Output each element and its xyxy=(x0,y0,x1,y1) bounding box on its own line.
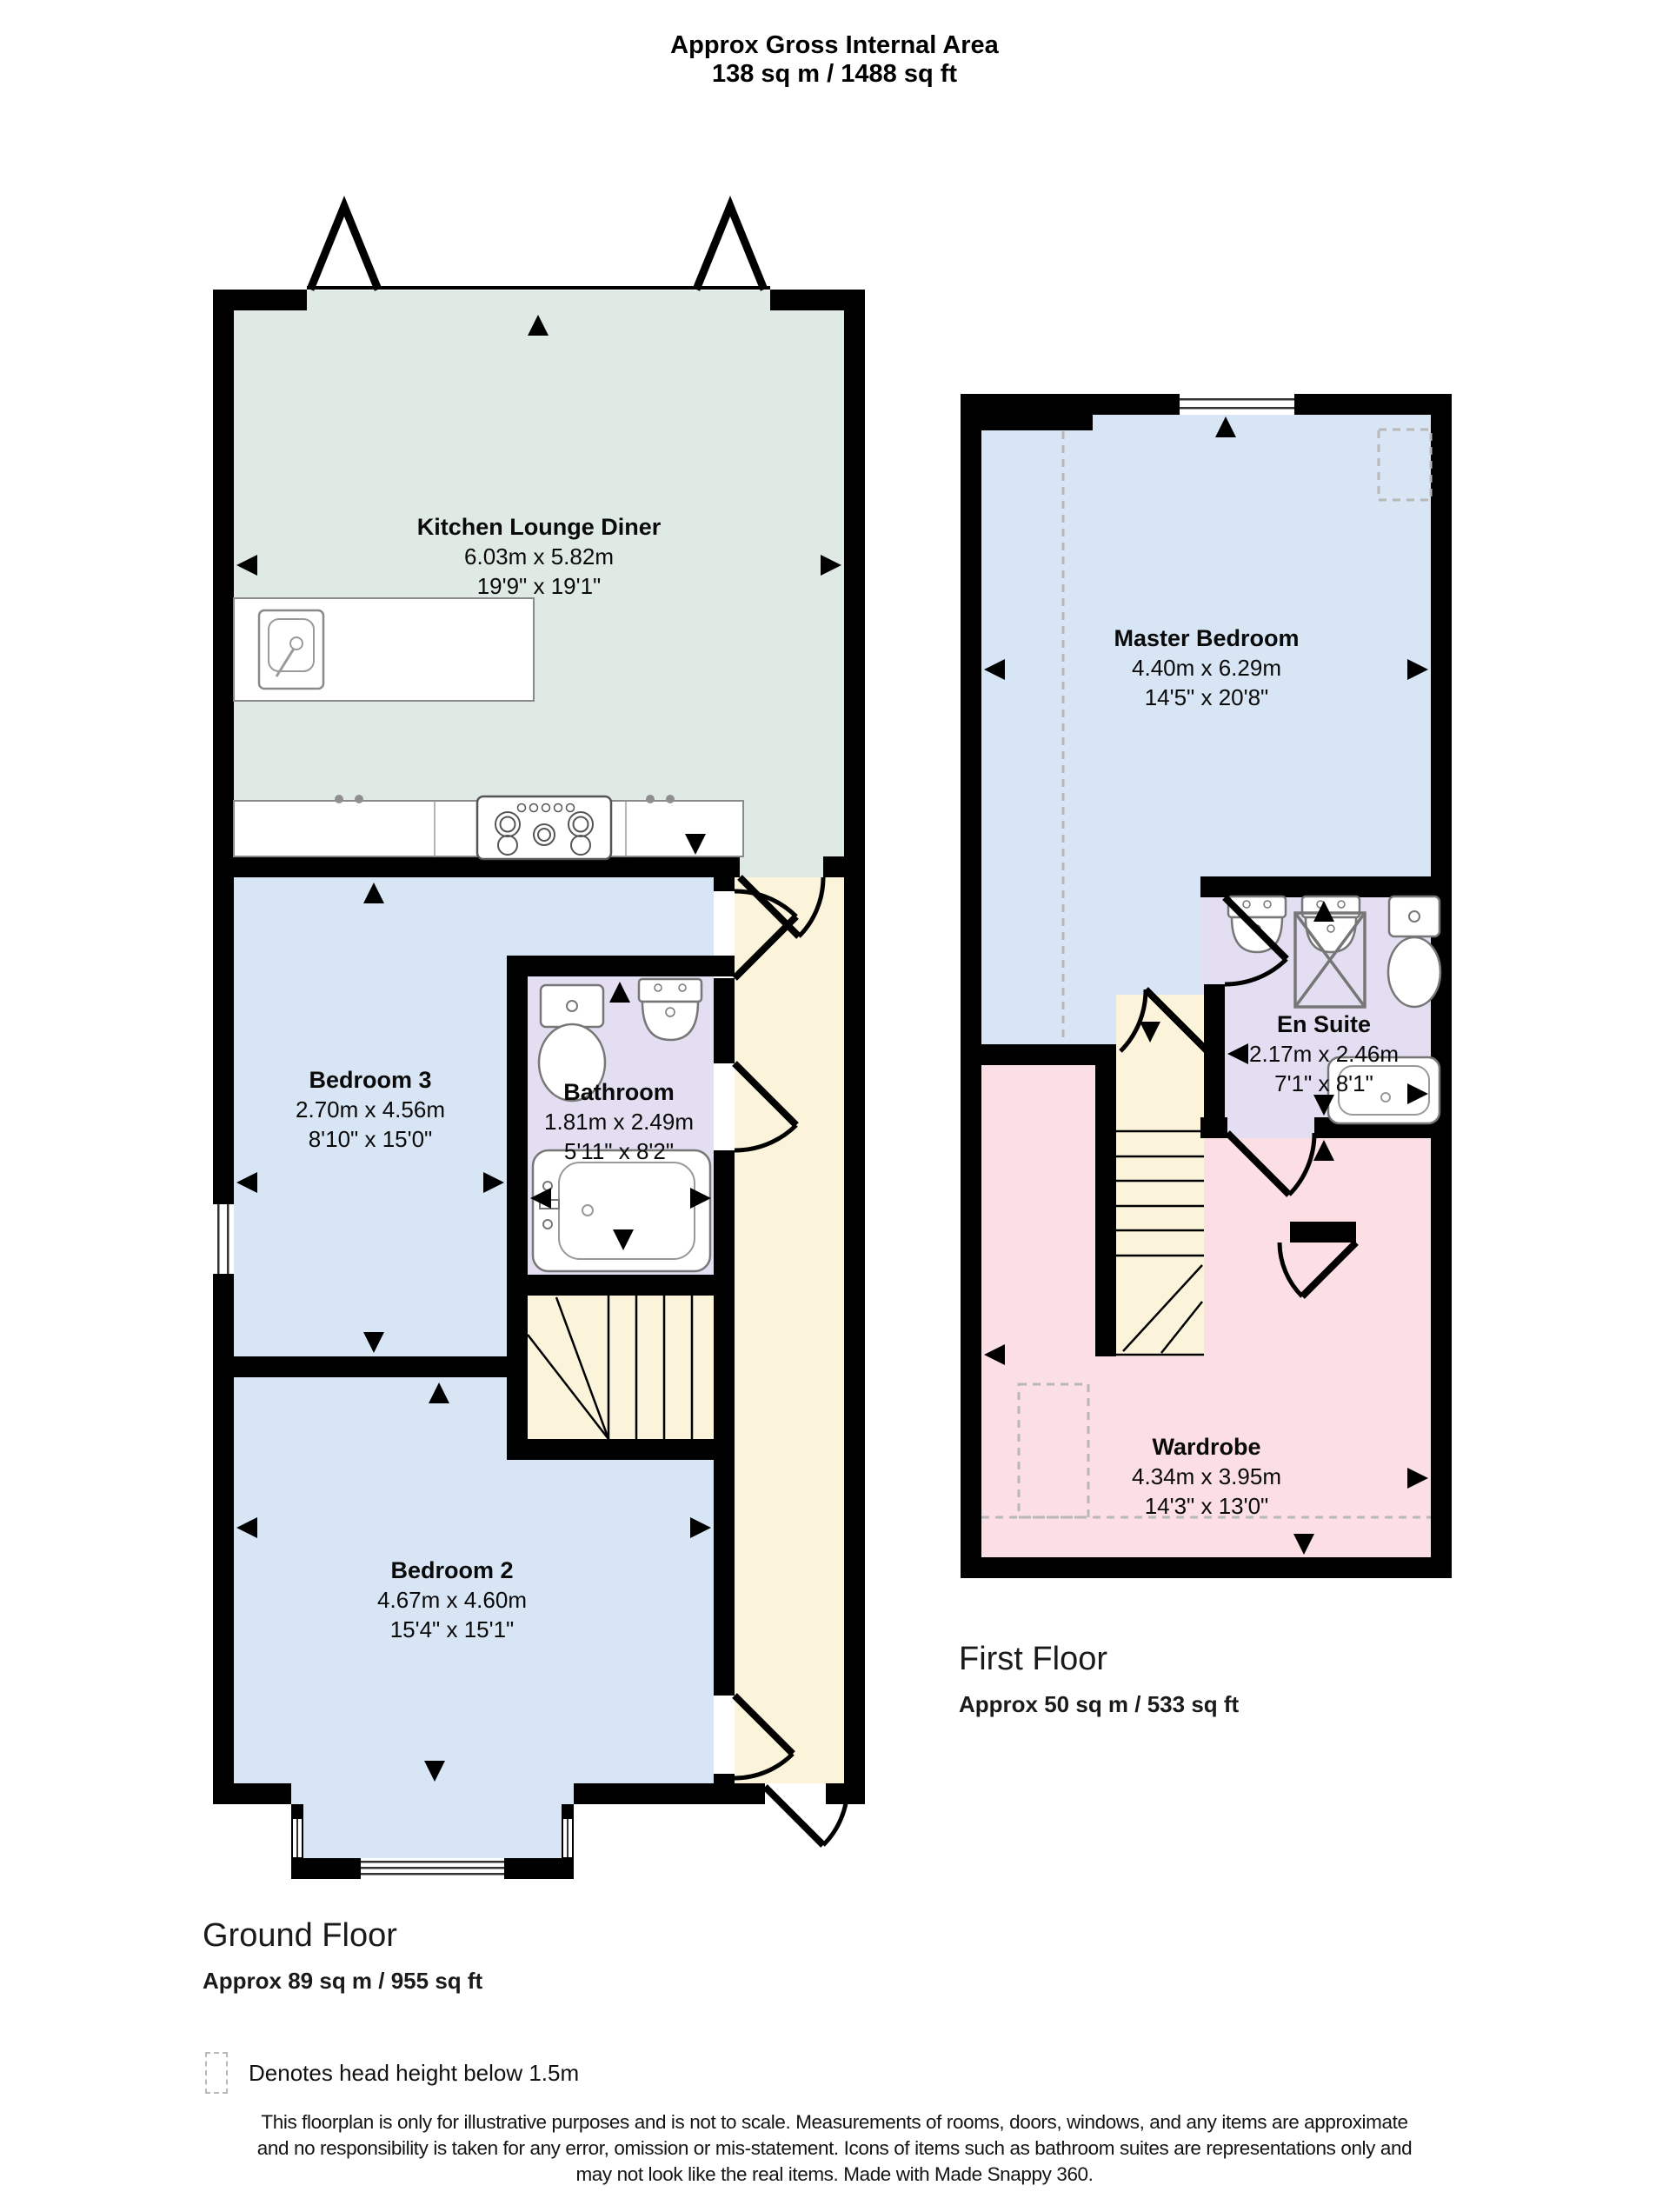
room-size-metric: 2.17m x 2.46m xyxy=(1249,1039,1399,1069)
floor-area: Approx 89 sq m / 955 sq ft xyxy=(203,1965,482,1996)
room-size-metric: 4.34m x 3.95m xyxy=(1132,1462,1281,1491)
window-line xyxy=(217,1204,220,1274)
wall-segment xyxy=(961,1557,1452,1578)
handle-dot xyxy=(335,795,343,803)
hallway-floor xyxy=(735,877,844,1783)
bathtub-icon xyxy=(533,1150,710,1271)
disclaimer-line: This floorplan is only for illustrative … xyxy=(0,2109,1669,2135)
first-floor-label: First Floor Approx 50 sq m / 533 sq ft xyxy=(959,1640,1239,1720)
first-floor-window xyxy=(1180,394,1294,415)
room-name: Bathroom xyxy=(544,1078,694,1107)
bifold-door-icon xyxy=(696,206,764,290)
room-name: Bedroom 2 xyxy=(377,1556,527,1585)
room-name: Master Bedroom xyxy=(1114,624,1299,653)
gross-area-value: 138 sq m / 1488 sq ft xyxy=(0,60,1669,89)
window xyxy=(1180,394,1294,415)
gross-area-title: Approx Gross Internal Area xyxy=(0,31,1669,60)
room-size-metric: 4.40m x 6.29m xyxy=(1114,653,1299,683)
room-label-bedroom2: Bedroom 2 4.67m x 4.60m 15'4" x 15'1" xyxy=(377,1556,527,1644)
wall-segment xyxy=(213,1356,528,1377)
room-size-metric: 4.67m x 4.60m xyxy=(377,1585,527,1615)
wall-segment xyxy=(714,1150,735,1696)
wall-segment xyxy=(1294,394,1452,415)
floor-name: Ground Floor xyxy=(203,1916,482,1955)
bifold-door-icons xyxy=(310,206,764,290)
basin-icon xyxy=(639,979,702,1040)
room-name: En Suite xyxy=(1249,1010,1399,1039)
room-label-ensuite: En Suite 2.17m x 2.46m 7'1" x 8'1" xyxy=(1249,1010,1399,1098)
room-name: Wardrobe xyxy=(1132,1433,1281,1462)
stairs-floor xyxy=(528,1296,714,1439)
wall-segment xyxy=(1204,984,1225,1131)
bathtub-inner xyxy=(559,1163,695,1259)
toilet-cistern xyxy=(541,985,603,1027)
wall-segment xyxy=(1095,1044,1116,1356)
room-size-imperial: 15'4" x 15'1" xyxy=(377,1615,527,1644)
bay-wall xyxy=(504,1858,574,1879)
window-line xyxy=(361,1867,504,1869)
disclaimer: This floorplan is only for illustrative … xyxy=(0,2109,1669,2188)
room-name: Bedroom 3 xyxy=(296,1066,445,1095)
wall-segment xyxy=(714,877,735,891)
room-label-bathroom: Bathroom 1.81m x 2.49m 5'11" x 8'2" xyxy=(544,1078,694,1166)
disclaimer-line: may not look like the real items. Made w… xyxy=(0,2162,1669,2188)
wall-segment xyxy=(213,290,234,1804)
first-floor-plan xyxy=(961,394,1452,1578)
hob-icon xyxy=(477,796,611,859)
wall-segment xyxy=(574,1783,765,1804)
wall-segment xyxy=(823,856,865,877)
wall-segment xyxy=(507,956,735,976)
wall-segment xyxy=(213,290,307,310)
wall-segment xyxy=(213,856,740,877)
legend: Denotes head height below 1.5m xyxy=(205,2052,579,2094)
legend-text: Denotes head height below 1.5m xyxy=(249,2060,579,2087)
floorplan-page: Approx Gross Internal Area 138 sq m / 14… xyxy=(0,0,1669,2212)
room-size-metric: 6.03m x 5.82m xyxy=(417,542,662,571)
room-size-metric: 2.70m x 4.56m xyxy=(296,1095,445,1124)
wall-segment xyxy=(714,978,735,1063)
room-label-kitchen: Kitchen Lounge Diner 6.03m x 5.82m 19'9"… xyxy=(417,513,662,601)
toilet-icon xyxy=(1388,896,1440,1007)
front-door-leaf xyxy=(765,1787,823,1845)
bay-window-floor xyxy=(291,1783,574,1858)
landing-stairs-floor xyxy=(1116,995,1204,1356)
window xyxy=(213,1204,234,1274)
handle-dot xyxy=(666,795,675,803)
room-size-imperial: 7'1" x 8'1" xyxy=(1249,1069,1399,1098)
handle-dot xyxy=(646,795,655,803)
window-line xyxy=(1180,407,1294,410)
wall-segment xyxy=(507,1439,735,1460)
head-height-legend-swatch xyxy=(205,2052,228,2094)
wall-segment xyxy=(507,1275,735,1296)
wall-segment xyxy=(961,394,981,1578)
bay-wall xyxy=(291,1858,361,1879)
page-title: Approx Gross Internal Area 138 sq m / 14… xyxy=(0,31,1669,89)
toilet-bowl xyxy=(1388,937,1440,1007)
room-size-imperial: 8'10" x 15'0" xyxy=(296,1124,445,1154)
wall-segment xyxy=(1290,1222,1356,1243)
wall-segment xyxy=(714,1774,735,1783)
wall-segment xyxy=(981,415,1093,430)
bifold-door-icon xyxy=(310,206,378,290)
wall-segment xyxy=(213,1783,291,1804)
window-line xyxy=(361,1861,504,1863)
window-line xyxy=(361,1873,504,1876)
wall-segment xyxy=(1200,876,1431,897)
room-label-master-bedroom: Master Bedroom 4.40m x 6.29m 14'5" x 20'… xyxy=(1114,624,1299,712)
window-line xyxy=(227,1204,229,1274)
window-line xyxy=(1180,398,1294,401)
room-size-imperial: 14'5" x 20'8" xyxy=(1114,683,1299,712)
room-label-bedroom3: Bedroom 3 2.70m x 4.56m 8'10" x 15'0" xyxy=(296,1066,445,1154)
floor-area: Approx 50 sq m / 533 sq ft xyxy=(959,1689,1239,1720)
room-size-imperial: 19'9" x 19'1" xyxy=(417,571,662,601)
handle-dot xyxy=(355,795,363,803)
floor-name: First Floor xyxy=(959,1640,1239,1678)
window-line xyxy=(296,1819,298,1857)
wall-segment xyxy=(770,290,865,310)
room-name: Kitchen Lounge Diner xyxy=(417,513,662,542)
wall-segment xyxy=(844,290,865,1804)
wall-segment xyxy=(1200,1117,1227,1138)
ground-floor-plan xyxy=(213,206,865,1879)
floorplan-graphic xyxy=(0,0,1669,2212)
room-size-imperial: 14'3" x 13'0" xyxy=(1132,1491,1281,1521)
window-line xyxy=(567,1819,569,1857)
room-size-imperial: 5'11" x 8'2" xyxy=(544,1136,694,1166)
toilet-cistern xyxy=(1389,896,1440,936)
ground-floor-label: Ground Floor Approx 89 sq m / 955 sq ft xyxy=(203,1916,482,1996)
basin-back xyxy=(639,979,702,1002)
wall-segment xyxy=(961,394,1180,415)
room-size-metric: 1.81m x 2.49m xyxy=(544,1107,694,1136)
wall-segment xyxy=(507,956,528,1460)
room-label-wardrobe: Wardrobe 4.34m x 3.95m 14'3" x 13'0" xyxy=(1132,1433,1281,1521)
disclaimer-line: and no responsibility is taken for any e… xyxy=(0,2135,1669,2162)
